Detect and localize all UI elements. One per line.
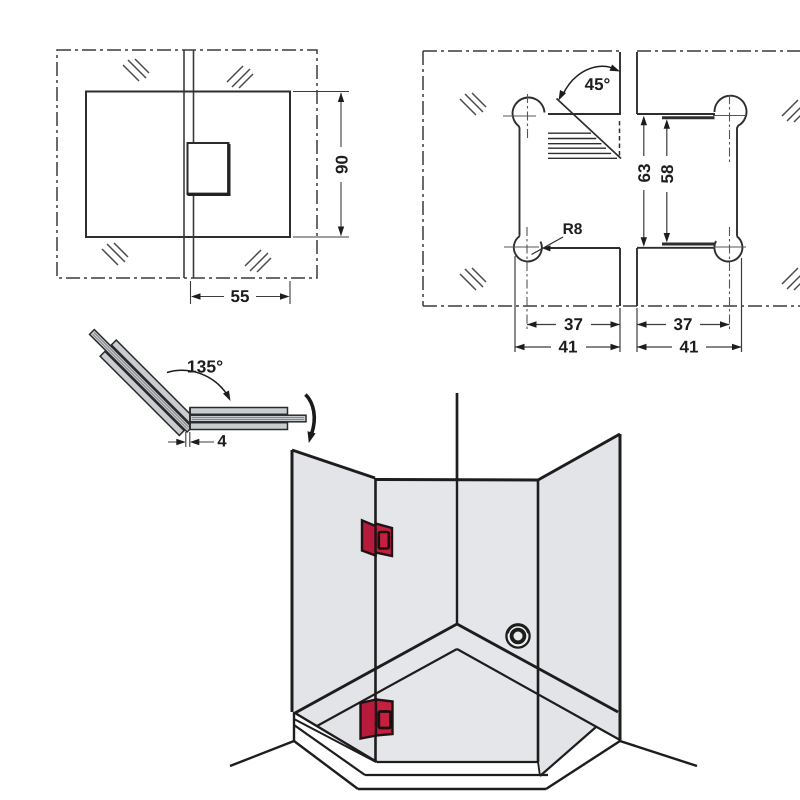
svg-text:45°: 45°	[585, 75, 611, 94]
svg-text:63: 63	[635, 164, 654, 183]
svg-text:58: 58	[658, 165, 677, 184]
svg-text:41: 41	[559, 338, 578, 357]
svg-text:4: 4	[217, 433, 227, 451]
svg-text:37: 37	[564, 315, 583, 334]
svg-text:41: 41	[680, 338, 699, 357]
svg-text:R8: R8	[563, 221, 583, 238]
svg-text:55: 55	[231, 287, 250, 306]
svg-text:135°: 135°	[187, 357, 223, 377]
svg-text:90: 90	[333, 155, 352, 174]
svg-text:37: 37	[674, 315, 693, 334]
